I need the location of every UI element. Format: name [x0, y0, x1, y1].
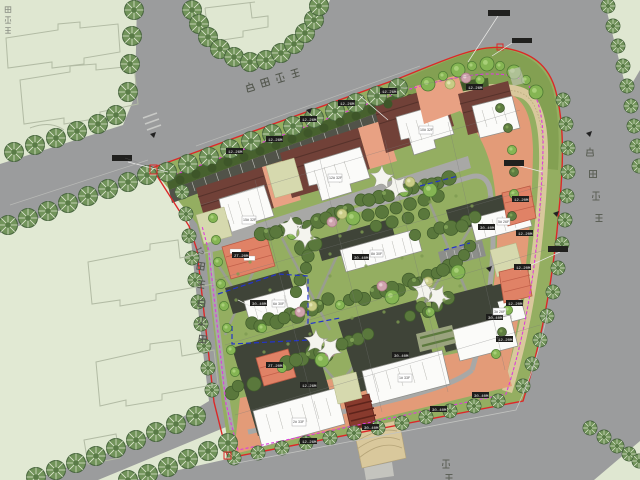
- svg-text:12-26M: 12-26M: [228, 151, 243, 155]
- svg-text:12-26M: 12-26M: [340, 103, 355, 107]
- svg-text:5# 26F: 5# 26F: [498, 220, 510, 224]
- svg-text:12-20M: 12-20M: [498, 339, 513, 343]
- svg-text:12-26M: 12-26M: [468, 87, 483, 91]
- svg-text:12-26M: 12-26M: [302, 441, 317, 445]
- svg-text:8# 30F: 8# 30F: [371, 252, 383, 256]
- svg-text:12-20M: 12-20M: [508, 303, 523, 307]
- svg-text:2# 33F: 2# 33F: [293, 420, 305, 424]
- svg-text:1# 33F: 1# 33F: [399, 376, 411, 380]
- svg-text:12-26M: 12-26M: [302, 119, 317, 123]
- svg-text:30-40M: 30-40M: [252, 303, 267, 307]
- svg-text:30-40M: 30-40M: [432, 409, 447, 413]
- svg-text:6# 30F: 6# 30F: [273, 302, 285, 306]
- svg-text:30-40M: 30-40M: [354, 257, 369, 261]
- svg-text:12-26M: 12-26M: [268, 139, 283, 143]
- svg-text:12-20M: 12-20M: [518, 233, 533, 237]
- svg-text:12-20M: 12-20M: [514, 199, 529, 203]
- svg-text:30-40M: 30-40M: [480, 227, 495, 231]
- svg-text:10# 32F: 10# 32F: [420, 128, 434, 132]
- svg-text:30-40M: 30-40M: [394, 355, 409, 359]
- svg-text:12-20M: 12-20M: [516, 267, 531, 271]
- svg-text:3# 26F: 3# 26F: [494, 310, 506, 314]
- svg-text:30-40M: 30-40M: [364, 427, 379, 431]
- svg-text:12# 32F: 12# 32F: [329, 176, 343, 180]
- svg-text:12-26M: 12-26M: [302, 385, 317, 389]
- svg-text:2T-20M: 2T-20M: [268, 365, 283, 369]
- svg-text:15# 32F: 15# 32F: [243, 218, 257, 222]
- svg-text:30-40M: 30-40M: [474, 395, 489, 399]
- svg-text:30-40M: 30-40M: [488, 317, 503, 321]
- svg-text:2T-20M: 2T-20M: [234, 255, 249, 259]
